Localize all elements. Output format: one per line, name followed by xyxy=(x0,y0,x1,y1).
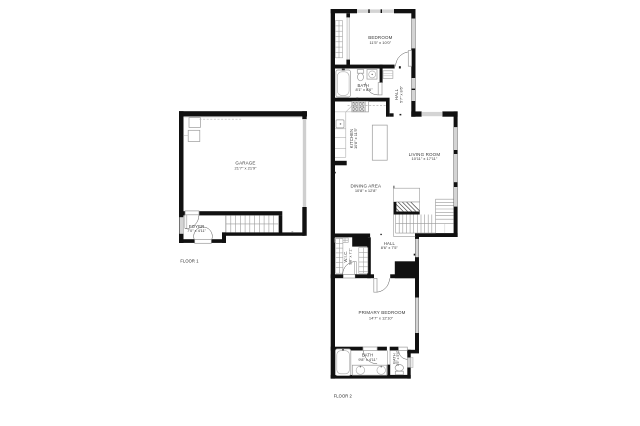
svg-text:5'7" x 8'6": 5'7" x 8'6" xyxy=(398,85,403,103)
svg-text:21'7" x 21'9": 21'7" x 21'9" xyxy=(235,166,258,171)
svg-text:11'5" x 10'0": 11'5" x 10'0" xyxy=(369,40,391,45)
svg-text:14'7" x 12'10": 14'7" x 12'10" xyxy=(369,315,394,320)
svg-text:7'0" x 4'11": 7'0" x 4'11" xyxy=(187,228,207,233)
svg-text:9'8" x 4'11": 9'8" x 4'11" xyxy=(358,357,378,362)
svg-text:10'8" x 12'8": 10'8" x 12'8" xyxy=(355,188,378,193)
svg-text:PRIMARY BEDROOM: PRIMARY BEDROOM xyxy=(358,310,405,315)
svg-text:FLOOR 2: FLOOR 2 xyxy=(334,393,353,398)
svg-text:FLOOR 1: FLOOR 1 xyxy=(180,258,199,263)
svg-text:8'6" x 7'5": 8'6" x 7'5" xyxy=(381,245,399,250)
svg-text:3'5" x 5'0": 3'5" x 5'0" xyxy=(396,350,400,366)
svg-text:10'11" x 17'11": 10'11" x 17'11" xyxy=(412,156,438,161)
svg-text:8'1" x 8'6": 8'1" x 8'6" xyxy=(355,87,373,92)
svg-text:10'8" x 11'5": 10'8" x 11'5" xyxy=(353,127,358,149)
